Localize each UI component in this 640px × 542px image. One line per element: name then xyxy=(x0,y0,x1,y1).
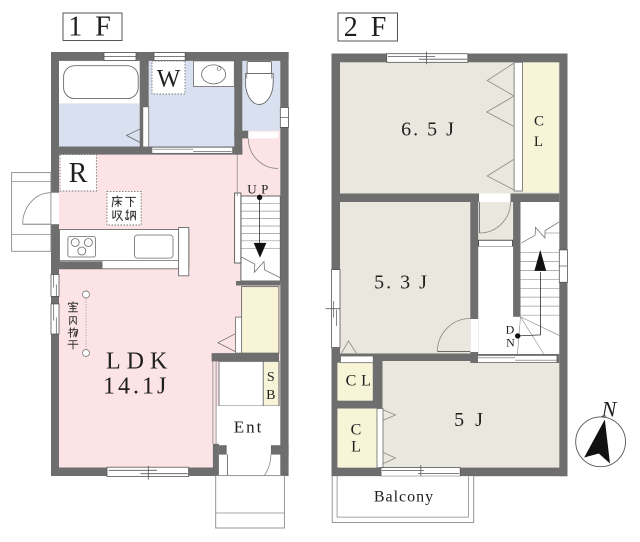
svg-text:5. 3 J: 5. 3 J xyxy=(374,272,429,294)
svg-text:5 J: 5 J xyxy=(454,409,486,431)
svg-text:14.1J: 14.1J xyxy=(103,374,169,400)
svg-text:C: C xyxy=(534,114,544,130)
svg-text:Balcony: Balcony xyxy=(374,489,434,506)
svg-text:R: R xyxy=(69,158,88,189)
svg-text:N: N xyxy=(506,336,515,350)
svg-text:6. 5 J: 6. 5 J xyxy=(401,119,456,141)
svg-text:B: B xyxy=(266,388,275,403)
svg-text:L: L xyxy=(361,373,371,390)
svg-text:LDK: LDK xyxy=(106,349,173,375)
svg-text:UP: UP xyxy=(247,182,273,197)
svg-text:1 F: 1 F xyxy=(68,12,114,43)
svg-text:C: C xyxy=(346,373,357,390)
svg-text:L: L xyxy=(534,134,543,150)
svg-text:W: W xyxy=(157,66,181,93)
svg-text:D: D xyxy=(506,323,515,337)
svg-text:N: N xyxy=(601,397,618,422)
svg-text:S: S xyxy=(267,370,275,385)
svg-text:C: C xyxy=(351,422,362,439)
svg-text:L: L xyxy=(351,439,361,456)
svg-text:Ent: Ent xyxy=(234,418,264,437)
svg-text:2 F: 2 F xyxy=(344,12,390,43)
